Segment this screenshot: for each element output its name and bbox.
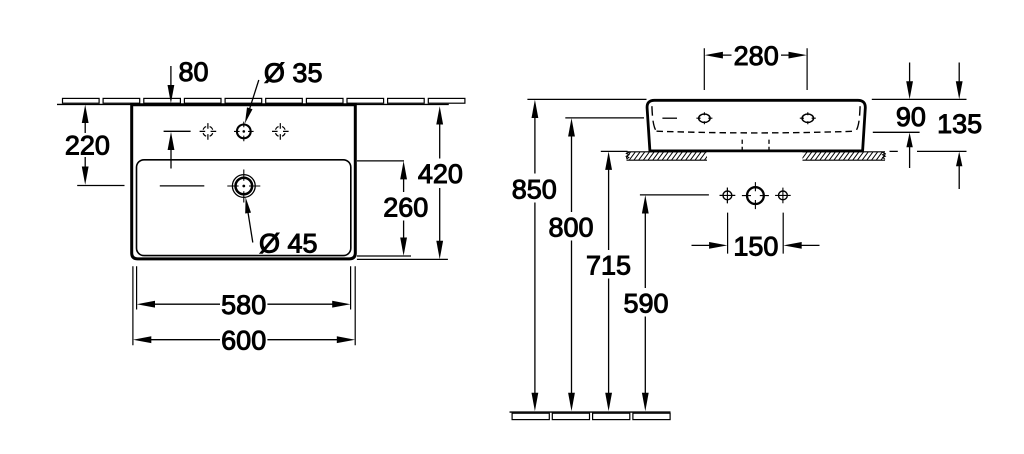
svg-text:Ø 45: Ø 45 bbox=[259, 229, 318, 259]
svg-text:580: 580 bbox=[221, 290, 266, 320]
svg-text:590: 590 bbox=[623, 289, 668, 319]
svg-text:600: 600 bbox=[221, 325, 266, 355]
svg-text:800: 800 bbox=[548, 213, 593, 243]
svg-text:280: 280 bbox=[734, 41, 779, 71]
svg-text:850: 850 bbox=[512, 174, 557, 204]
svg-text:220: 220 bbox=[65, 130, 110, 160]
svg-text:80: 80 bbox=[178, 57, 208, 87]
svg-text:Ø 35: Ø 35 bbox=[264, 58, 323, 88]
svg-text:715: 715 bbox=[586, 251, 631, 281]
svg-text:260: 260 bbox=[383, 193, 428, 223]
svg-text:420: 420 bbox=[418, 159, 463, 189]
svg-text:150: 150 bbox=[733, 231, 778, 261]
svg-text:90: 90 bbox=[896, 102, 926, 132]
svg-text:135: 135 bbox=[937, 109, 982, 139]
